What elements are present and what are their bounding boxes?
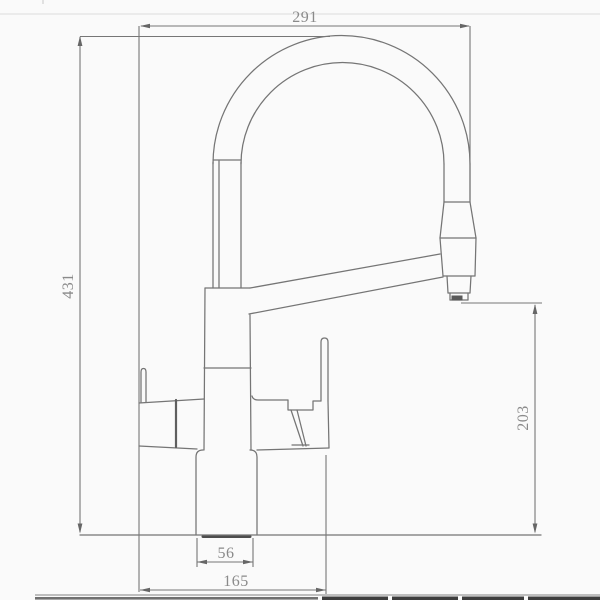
dim-label-165: 165 <box>223 573 249 590</box>
dim-label-203: 203 <box>515 405 532 431</box>
table-cell-edge-4 <box>462 597 524 600</box>
faucet-dimension-drawing: 291 431 203 56 165 <box>0 0 600 600</box>
table-cell-edge-1 <box>35 597 318 600</box>
dim-label-56: 56 <box>218 545 235 562</box>
table-cell-edge-5 <box>528 597 600 600</box>
aerator-outlet <box>452 296 463 301</box>
dim-label-431: 431 <box>60 273 77 299</box>
page-background <box>0 0 600 600</box>
spec-sheet-page: 291 431 203 56 165 <box>0 0 600 600</box>
dim-label-291: 291 <box>292 9 318 26</box>
table-cell-edge-2 <box>322 597 388 600</box>
table-cell-edge-3 <box>392 597 458 600</box>
